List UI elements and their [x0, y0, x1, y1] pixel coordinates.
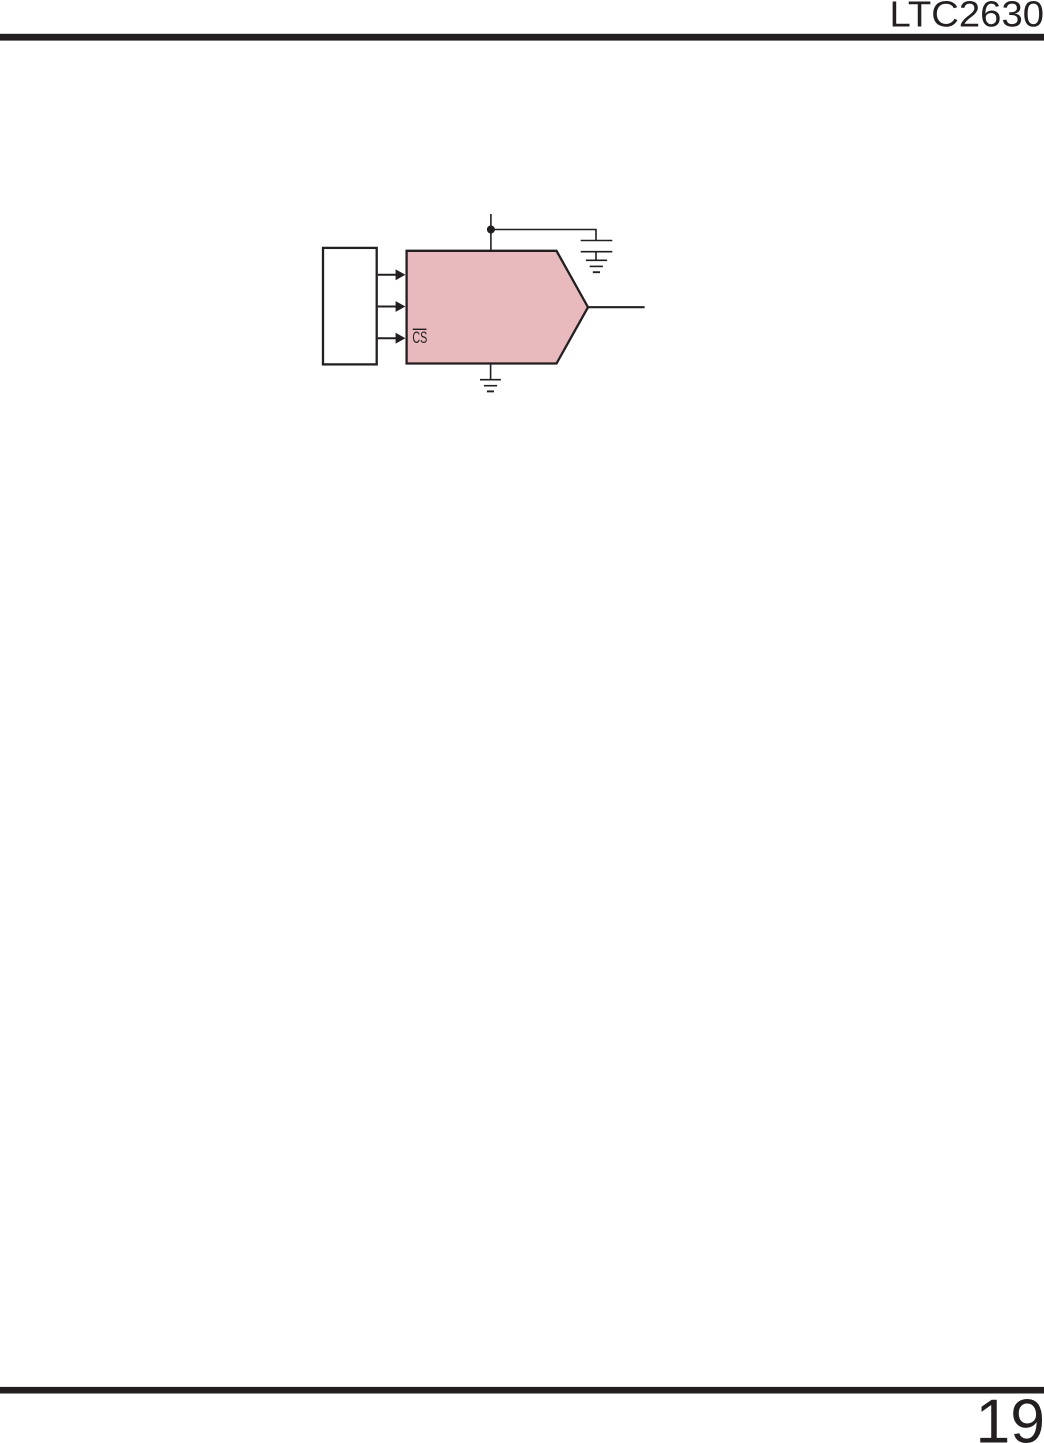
svg-text:CS: CS [412, 328, 427, 347]
svg-text:LTC2630: LTC2630 [890, 0, 1044, 35]
svg-text:19: 19 [975, 1386, 1044, 1443]
